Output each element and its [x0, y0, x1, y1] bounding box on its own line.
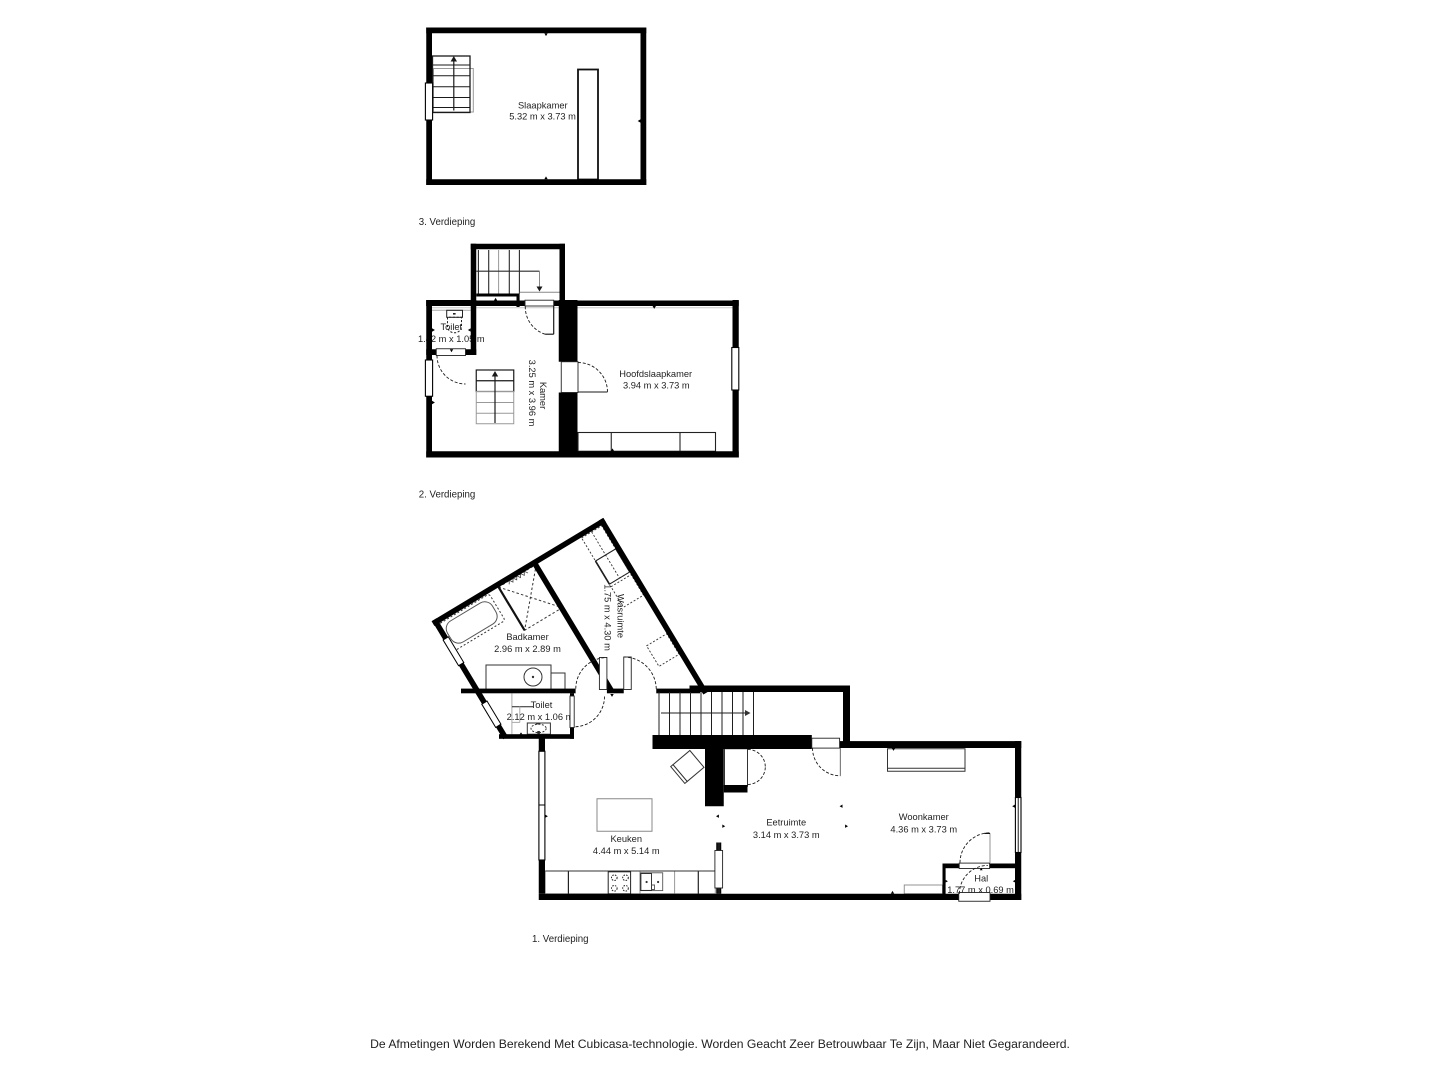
svg-text:Eetruimte: Eetruimte [766, 818, 806, 828]
svg-text:3.25 m x 3.96 m: 3.25 m x 3.96 m [527, 360, 537, 427]
svg-text:Badkamer: Badkamer [506, 632, 548, 642]
svg-text:Hoofdslaapkamer: Hoofdslaapkamer [619, 369, 692, 379]
svg-text:3.94 m x 3.73 m: 3.94 m x 3.73 m [623, 380, 690, 390]
svg-text:De Afmetingen Worden Berekend: De Afmetingen Worden Berekend Met Cubica… [370, 1037, 1070, 1051]
svg-text:2.12 m x 1.06 m: 2.12 m x 1.06 m [507, 712, 574, 722]
svg-text:2.96 m x 2.89 m: 2.96 m x 2.89 m [494, 644, 561, 654]
svg-text:2. Verdieping: 2. Verdieping [419, 490, 476, 501]
svg-text:Kamer: Kamer [538, 382, 548, 409]
svg-text:3.14 m x 3.73 m: 3.14 m x 3.73 m [753, 830, 820, 840]
svg-text:Wasruimte: Wasruimte [616, 594, 626, 638]
svg-text:Slaapkamer: Slaapkamer [518, 100, 568, 110]
svg-text:1.75 m x 4.30 m: 1.75 m x 4.30 m [603, 584, 613, 651]
svg-text:Hal: Hal [974, 874, 988, 884]
svg-text:4.36 m x 3.73 m: 4.36 m x 3.73 m [890, 824, 957, 834]
svg-text:4.44 m x 5.14 m: 4.44 m x 5.14 m [593, 846, 660, 856]
svg-text:3. Verdieping: 3. Verdieping [419, 217, 476, 228]
svg-text:5.32 m x 3.73 m: 5.32 m x 3.73 m [509, 112, 576, 122]
svg-text:1. Verdieping: 1. Verdieping [532, 934, 589, 945]
svg-text:Woonkamer: Woonkamer [899, 812, 949, 822]
svg-text:Toilet: Toilet [440, 322, 462, 332]
svg-text:Keuken: Keuken [610, 834, 642, 844]
svg-text:Toilet: Toilet [531, 700, 553, 710]
